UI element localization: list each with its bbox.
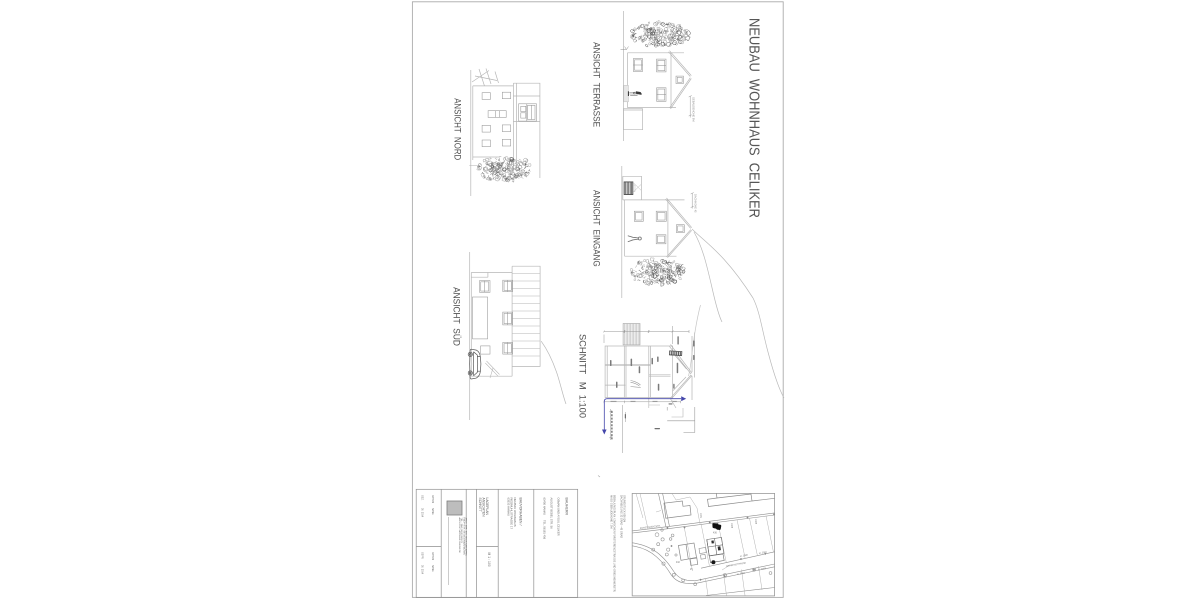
svg-text:DATUM: DATUM xyxy=(431,495,434,503)
svg-text:M 1 : 100: M 1 : 100 xyxy=(487,553,491,567)
svg-text:GEBAUDEHOHE 8M: GEBAUDEHOHE 8M xyxy=(692,97,696,122)
svg-text:BAUVORHABEN /: BAUVORHABEN / xyxy=(519,498,523,526)
svg-text:SCHNITT M 1:100: SCHNITT M 1:100 xyxy=(577,334,588,418)
svg-text:BAUHERR: BAUHERR xyxy=(564,498,568,516)
svg-text:MASS GEBAUDEHOHE 7.5M: MASS GEBAUDEHOHE 7.5M xyxy=(610,495,613,528)
svg-text:NAME: NAME xyxy=(431,508,434,515)
svg-text:NAME: NAME xyxy=(431,565,434,572)
svg-text:SCHNITT: SCHNITT xyxy=(478,498,482,512)
svg-text:05. 2014: 05. 2014 xyxy=(421,508,423,518)
svg-text:TEL. 06181 456: TEL. 06181 456 xyxy=(543,520,547,540)
svg-text:BEBAUUNGSPLAN / ZWISCHEN FORST: BEBAUUNGSPLAN / ZWISCHEN FORSTGRENZSTRAS… xyxy=(613,495,616,593)
svg-text:AUGUST BEBEL STR. 56: AUGUST BEBEL STR. 56 xyxy=(550,498,554,530)
svg-text:NEUBAU WOHNHAUS CELIKER: NEUBAU WOHNHAUS CELIKER xyxy=(745,18,762,218)
svg-text:ANSICHT TERRASSE: ANSICHT TERRASSE xyxy=(591,42,602,127)
svg-text:GRUNDSTUCK 636 QM: GRUNDSTUCK 636 QM xyxy=(622,495,625,522)
svg-text:ANSICHT SÜD: ANSICHT SÜD xyxy=(451,287,462,346)
svg-text:DATUM: DATUM xyxy=(431,552,434,560)
svg-text:ANSICHT NORD: ANSICHT NORD xyxy=(451,98,462,160)
svg-text:ARCHITEKT APPELBR ONLINE.DE: ARCHITEKT APPELBR ONLINE.DE xyxy=(458,518,461,554)
svg-text:63533 HANAU: 63533 HANAU xyxy=(507,498,511,516)
svg-text:ANSICHT EINGANG: ANSICHT EINGANG xyxy=(591,190,602,267)
svg-text:1031: 1031 xyxy=(699,513,701,519)
svg-text:1025: 1025 xyxy=(754,519,756,525)
svg-text:05. 2014: 05. 2014 xyxy=(421,565,423,575)
svg-text:63450 HANAU: 63450 HANAU xyxy=(543,498,547,516)
svg-text:DACHNEIGUNG 32 GRAD - 45 GRAD: DACHNEIGUNG 32 GRAD - 45 GRAD xyxy=(620,495,623,538)
svg-text:DACHHOHE 45: DACHHOHE 45 xyxy=(694,194,698,213)
svg-text:OSMAN UND AYGUL CELIKER: OSMAN UND AYGUL CELIKER xyxy=(556,498,560,536)
svg-text:1028: 1028 xyxy=(730,523,732,529)
svg-text:GEZ.: GEZ. xyxy=(421,495,423,501)
svg-text:GEPR.: GEPR. xyxy=(421,552,423,560)
